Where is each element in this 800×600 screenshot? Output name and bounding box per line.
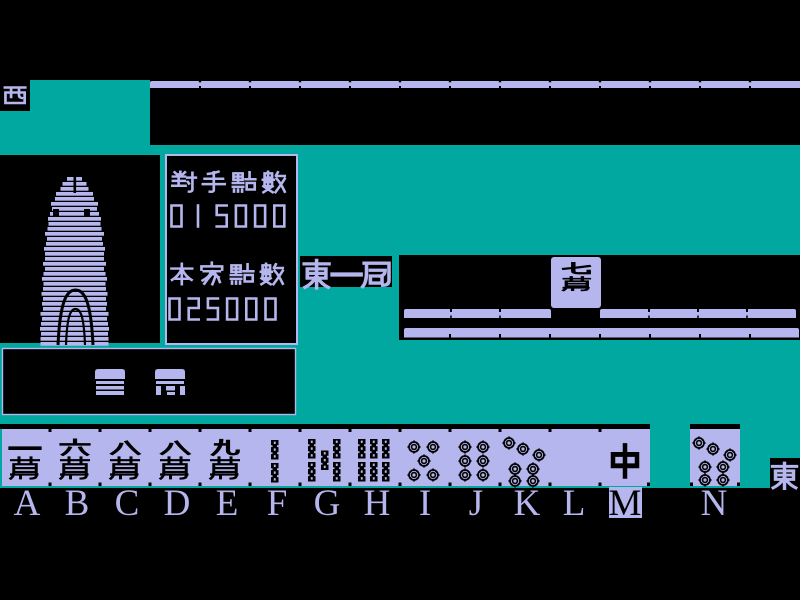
- svg-text:L: L: [563, 483, 586, 524]
- svg-text:G: G: [314, 483, 341, 524]
- svg-text:D: D: [164, 483, 191, 524]
- svg-text:K: K: [514, 483, 541, 524]
- svg-text:A: A: [14, 483, 41, 524]
- svg-text:C: C: [115, 483, 140, 524]
- svg-text:I: I: [419, 483, 431, 524]
- svg-text:N: N: [701, 483, 728, 524]
- svg-text:H: H: [364, 483, 391, 524]
- svg-text:E: E: [216, 483, 239, 524]
- svg-text:M: M: [609, 483, 642, 524]
- svg-text:F: F: [267, 483, 288, 524]
- svg-text:J: J: [469, 483, 483, 524]
- svg-text:B: B: [65, 483, 90, 524]
